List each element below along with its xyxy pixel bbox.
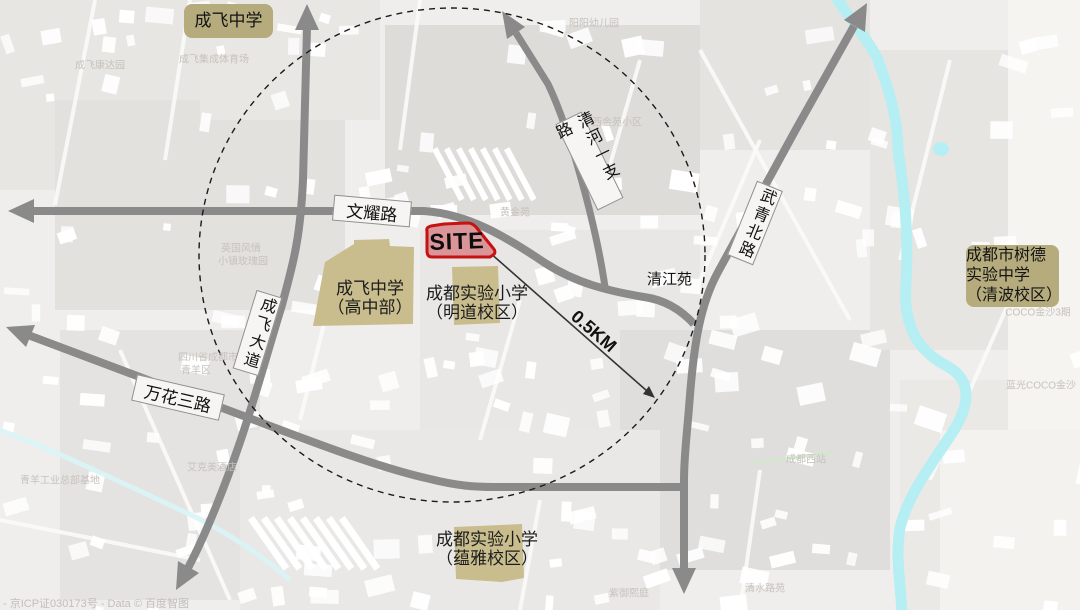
- caption-yunya-line2: （蕴雅校区）: [407, 549, 567, 568]
- basemap-label: 成都西站: [786, 451, 826, 466]
- building: [4, 287, 30, 295]
- basemap-label: 蓝光COCO金沙: [1006, 377, 1076, 392]
- building: [751, 438, 764, 448]
- building: [862, 229, 874, 246]
- building: [1043, 600, 1058, 610]
- building: [310, 590, 338, 605]
- building: [92, 18, 107, 36]
- building: [1054, 520, 1067, 536]
- caption-yunya: 成都实验小学 （蕴雅校区）: [407, 530, 567, 568]
- building: [835, 200, 863, 219]
- building: [723, 133, 736, 150]
- building: [714, 372, 739, 393]
- building: [720, 594, 748, 610]
- place-label-qingjiangyuan: 清江苑: [647, 268, 692, 289]
- building: [990, 121, 1012, 139]
- basemap-label: 成飞康达园: [75, 57, 125, 72]
- building: [163, 223, 171, 231]
- building: [545, 595, 554, 610]
- basemap-label: 黄金苑: [500, 204, 530, 219]
- basemap-label: 艾克美酒店: [187, 459, 237, 474]
- building: [43, 376, 59, 385]
- building: [373, 539, 399, 559]
- basemap-label: 清水路苑: [745, 580, 785, 595]
- building: [617, 300, 643, 317]
- pond: [933, 142, 949, 156]
- building: [46, 93, 55, 102]
- building: [145, 7, 174, 25]
- building: [288, 38, 299, 55]
- building: [804, 187, 817, 201]
- caption-yunya-line1: 成都实验小学: [407, 530, 567, 549]
- building: [993, 536, 1015, 550]
- caption-mingdao-line2: （明道校区）: [397, 303, 557, 322]
- building: [2, 497, 29, 517]
- building: [890, 404, 907, 412]
- building: [703, 205, 718, 222]
- building: [370, 400, 390, 410]
- building: [147, 432, 159, 443]
- building: [693, 236, 717, 246]
- building: [826, 140, 837, 150]
- basemap-label: 小镇玫瑰园: [218, 253, 268, 268]
- building: [419, 132, 434, 152]
- basemap-label: 紫御熙庭: [609, 585, 649, 600]
- poi-box-shude-line2: （清波校区）: [966, 286, 1059, 306]
- building: [378, 371, 400, 393]
- building: [551, 222, 568, 231]
- poi-box-chengfei-middle-school: 成飞中学: [184, 4, 273, 38]
- building: [637, 39, 665, 57]
- building: [612, 528, 628, 539]
- building: [271, 586, 285, 607]
- basemap-label: 阳阳幼儿园: [569, 15, 619, 30]
- building: [102, 36, 117, 53]
- map-copyright: - 京ICP证030173号 - Data © 百度智图: [3, 595, 189, 610]
- building: [710, 494, 719, 508]
- building: [67, 315, 85, 331]
- building: [590, 358, 604, 370]
- building: [573, 510, 596, 531]
- building: [32, 304, 41, 321]
- road-arrow-south: [672, 568, 696, 594]
- building: [640, 216, 658, 229]
- building: [80, 393, 105, 407]
- site-analysis-map: 成飞康达园成飞集成体育场英国风情小镇玫瑰园阳阳幼儿园西金苑小区黄金苑四川省成都市…: [0, 0, 1080, 610]
- building: [262, 485, 271, 495]
- building: [812, 544, 831, 555]
- site-label: SITE: [415, 227, 500, 257]
- building: [1051, 107, 1074, 117]
- building: [533, 458, 553, 474]
- poi-box-shude-school: 成都市树德实验中学 （清波校区）: [966, 245, 1059, 307]
- building: [119, 10, 135, 24]
- building: [226, 185, 249, 203]
- building: [443, 360, 455, 369]
- basemap-label: 成飞集成体育场: [179, 51, 249, 66]
- basemap-label: 青羊工业总部基地: [20, 472, 100, 487]
- poi-box-shude-line1: 成都市树德实验中学: [966, 246, 1059, 286]
- caption-mingdao: 成都实验小学 （明道校区）: [397, 284, 557, 322]
- basemap-label: 青羊区: [181, 362, 211, 377]
- caption-mingdao-line1: 成都实验小学: [397, 284, 557, 303]
- road-arrow-west: [8, 199, 34, 223]
